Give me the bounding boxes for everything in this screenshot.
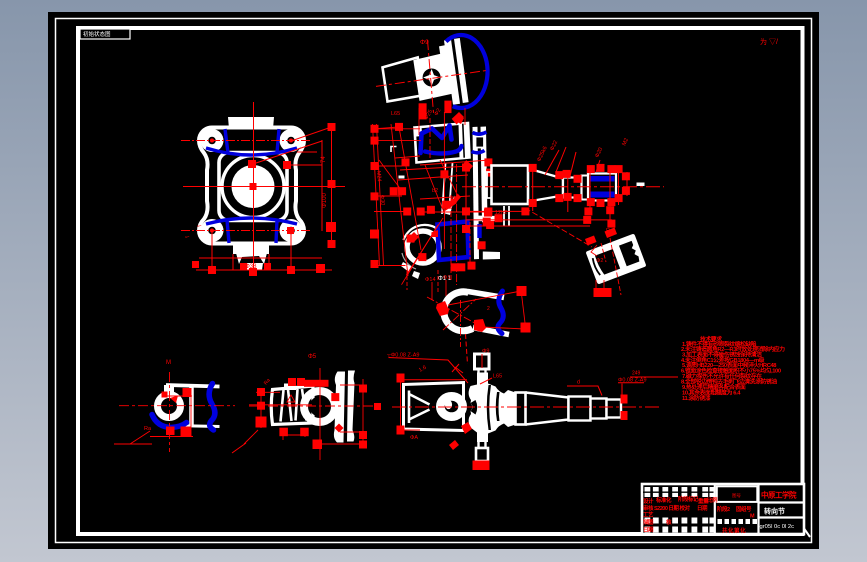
svg-text:12h2: 12h2 [495, 210, 507, 216]
svg-text:日期: 日期 [697, 504, 708, 512]
svg-text:Φ100: Φ100 [322, 193, 328, 208]
svg-text:R: R [606, 228, 610, 234]
svg-text:日期: 日期 [643, 526, 654, 534]
svg-text:阶段标记: 阶段标记 [678, 495, 699, 503]
svg-text:Φ9: Φ9 [420, 39, 429, 46]
svg-text:d: d [577, 380, 580, 386]
svg-text:Φ5: Φ5 [308, 354, 317, 360]
svg-text:转向节: 转向节 [764, 507, 785, 516]
svg-text:74: 74 [321, 156, 327, 163]
svg-text:初始状态图: 初始状态图 [83, 30, 111, 38]
svg-text:M: M [166, 360, 171, 366]
svg-text:249: 249 [632, 371, 641, 377]
svg-text:工艺: 工艺 [643, 511, 654, 519]
svg-text:┬Φ0.08 Z-A9: ┬Φ0.08 Z-A9 [386, 353, 419, 359]
svg-text:L65: L65 [391, 111, 400, 117]
svg-text:Φ2: Φ2 [596, 258, 603, 264]
svg-text:标准化: 标准化 [655, 496, 672, 504]
svg-text:Φ9: Φ9 [482, 349, 489, 355]
svg-text:为 ▽/: 为 ▽/ [760, 37, 778, 46]
svg-text:gr05l 0c 0l 2c: gr05l 0c 0l 2c [760, 524, 795, 530]
svg-text:Ra: Ra [144, 426, 152, 432]
svg-text:Φ30: Φ30 [379, 195, 386, 206]
svg-text:设计: 设计 [643, 497, 654, 505]
svg-text:阶段2: 阶段2 [717, 505, 730, 513]
svg-text:固组号: 固组号 [736, 505, 752, 513]
svg-text:Φ0.08 Z-A9: Φ0.08 Z-A9 [618, 378, 647, 384]
svg-text:ΦA: ΦA [410, 435, 418, 441]
svg-text:L65: L65 [493, 374, 502, 380]
svg-text:2: 2 [487, 306, 490, 312]
svg-text:比例: 比例 [707, 496, 718, 504]
svg-text:Φ14: Φ14 [425, 277, 436, 283]
svg-text:b2: b2 [432, 188, 438, 194]
svg-text:11.涂防锈漆: 11.涂防锈漆 [682, 394, 711, 402]
svg-text:审核: 审核 [643, 504, 654, 512]
svg-text:描图: 描图 [643, 518, 654, 526]
svg-text:Φ1: Φ1 [443, 275, 450, 281]
svg-text:中原工学院: 中原工学院 [761, 490, 797, 500]
svg-text:共 化 第 化: 共 化 第 化 [722, 527, 746, 535]
svg-text:M24: M24 [375, 171, 382, 182]
svg-text:S2200 日期 校对: S2200 日期 校对 [654, 504, 690, 512]
